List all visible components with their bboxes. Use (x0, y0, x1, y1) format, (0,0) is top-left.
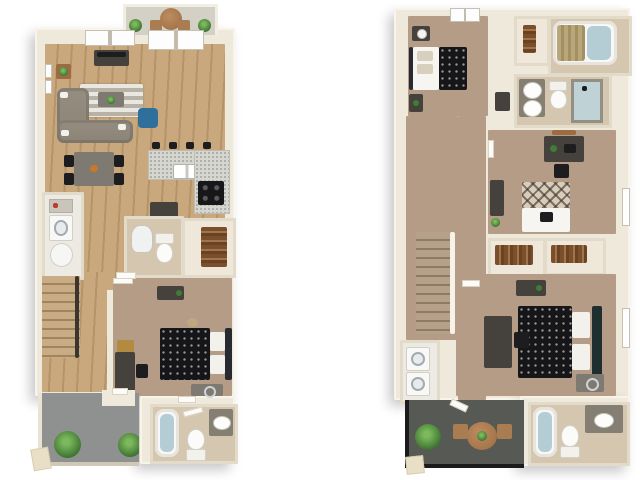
coffee-table (98, 92, 124, 107)
bed (522, 182, 570, 208)
plant (59, 67, 68, 76)
desk-plant (550, 145, 557, 152)
wall-art (45, 80, 52, 94)
pedestal-sink (131, 225, 153, 253)
towels (523, 25, 536, 53)
desk-chair (514, 332, 529, 348)
door-leaf (178, 396, 196, 403)
bedroom-2-window (450, 8, 480, 22)
dresser (490, 180, 504, 216)
entry-step (405, 455, 425, 475)
desk-chair (136, 364, 148, 378)
second-floor-plan: Mech. (392, 4, 632, 472)
desk (544, 136, 584, 162)
vanity-sink (594, 413, 614, 428)
decor-plant (176, 290, 182, 296)
decor-bowl (204, 386, 216, 398)
bar-stool (203, 142, 211, 149)
desk-chair (554, 164, 569, 178)
bar-stool (152, 142, 160, 149)
balcony-table (467, 422, 497, 450)
vanity-sink (213, 416, 231, 430)
bath-water (160, 414, 174, 452)
kitchen-island (150, 202, 178, 217)
nightstand (576, 374, 604, 392)
bath-water (587, 26, 611, 60)
first-floor-plan (30, 0, 238, 472)
washer (406, 347, 430, 371)
dresser (516, 280, 546, 296)
toilet-bowl (156, 243, 173, 263)
plant (415, 424, 441, 450)
dryer (406, 372, 430, 396)
living-room-window (85, 30, 135, 46)
towel-bar (183, 407, 204, 418)
plant (107, 96, 115, 104)
decor-plant (536, 285, 542, 291)
bedroom-1 (113, 278, 232, 396)
hall-closet (182, 218, 236, 278)
kitchen-counter (194, 150, 230, 214)
bedroom-3 (488, 130, 616, 234)
stair-railing (75, 276, 79, 358)
bathroom-2 (548, 16, 632, 76)
bedroom-3-window (622, 188, 630, 226)
laundry-closet (400, 340, 440, 404)
floorplan-image: { "image": { "type": "3d-floorplan-rende… (0, 0, 640, 480)
headboard (592, 306, 602, 378)
bed-pillow (210, 332, 225, 351)
shower-curtain (557, 25, 585, 61)
dining-table (74, 152, 114, 186)
shower-fixture (582, 86, 587, 91)
pouf (187, 318, 198, 327)
bedroom-4 (456, 274, 616, 396)
dryer-drum (411, 377, 426, 392)
washer (49, 215, 73, 241)
bed (160, 328, 210, 380)
laptop (564, 144, 576, 153)
bathroom-4 (528, 402, 630, 466)
plant (118, 433, 139, 457)
wall-art (45, 64, 52, 78)
stairs (416, 232, 454, 334)
bed-pillow (572, 312, 590, 338)
door-leaf (488, 140, 494, 158)
balcony-chair (453, 424, 468, 439)
vanity (209, 409, 233, 436)
walk-in-closet (544, 238, 606, 276)
stair-railing (450, 232, 455, 334)
washer-drum (411, 352, 426, 367)
bathtub (155, 409, 179, 457)
table-plant (477, 431, 487, 441)
dresser (157, 286, 184, 300)
laundry-closet (42, 192, 84, 280)
hanging-clothes (551, 245, 587, 263)
half-bath (124, 216, 184, 278)
washer-drum (54, 220, 69, 236)
hanging-clothes (495, 245, 533, 265)
decor-plant (413, 100, 419, 106)
double-vanity (519, 79, 545, 117)
dining-chair (114, 155, 124, 167)
bed-pillow (572, 344, 590, 370)
detergent (53, 203, 58, 208)
plant (491, 218, 500, 227)
decor-bowl (586, 378, 599, 391)
hall-desk (495, 92, 510, 111)
throw-pillow (118, 124, 126, 130)
bed-pillow (417, 51, 433, 61)
vanity-sink (523, 100, 542, 117)
bathtub (533, 407, 557, 457)
wall-shelf (552, 130, 576, 135)
bed-pillow (210, 355, 225, 374)
nightstand (191, 384, 223, 396)
side-table (56, 64, 71, 79)
hanging-clothes (201, 227, 227, 267)
bed (439, 47, 467, 90)
entry-step (30, 447, 52, 472)
door-leaf (116, 272, 136, 279)
bed-pillow (417, 64, 433, 74)
linen-closet (514, 16, 550, 66)
vanity (585, 405, 623, 433)
shower-stall (571, 79, 603, 123)
water-heater (50, 243, 73, 267)
accent-chair (138, 108, 158, 128)
bedroom-2 (408, 16, 488, 116)
dining-chair (64, 173, 74, 185)
nightstand (412, 26, 430, 41)
toilet-tank (186, 449, 206, 461)
throw-pillow (61, 130, 69, 136)
toilet-tank (560, 446, 580, 458)
door-leaf (112, 388, 128, 395)
tv (97, 52, 126, 57)
centerpiece (90, 165, 98, 172)
french-doors (148, 30, 204, 50)
dining-chair (114, 173, 124, 185)
bath-water (538, 412, 552, 452)
plant (54, 431, 81, 458)
vanity-sink (523, 82, 542, 99)
toilet-bowl (561, 425, 579, 447)
tv-console (94, 50, 129, 66)
bar-stool (186, 142, 194, 149)
stairs (42, 276, 80, 358)
headboard (225, 328, 232, 380)
balcony-chair (497, 424, 512, 439)
door-leaf (462, 280, 480, 287)
dining-chair (64, 155, 74, 167)
laptop (540, 212, 553, 222)
shelf (49, 199, 73, 213)
bedroom-4-window (622, 308, 630, 348)
toilet-bowl (550, 90, 567, 109)
throw-pillow (60, 92, 68, 98)
bathroom-1 (150, 404, 238, 464)
bar-stool (169, 142, 177, 149)
lamp (417, 29, 427, 39)
toilet-bowl (187, 429, 205, 450)
stove (198, 181, 224, 205)
bathroom-3 (514, 74, 612, 128)
desk (484, 316, 512, 368)
dresser (409, 94, 423, 112)
